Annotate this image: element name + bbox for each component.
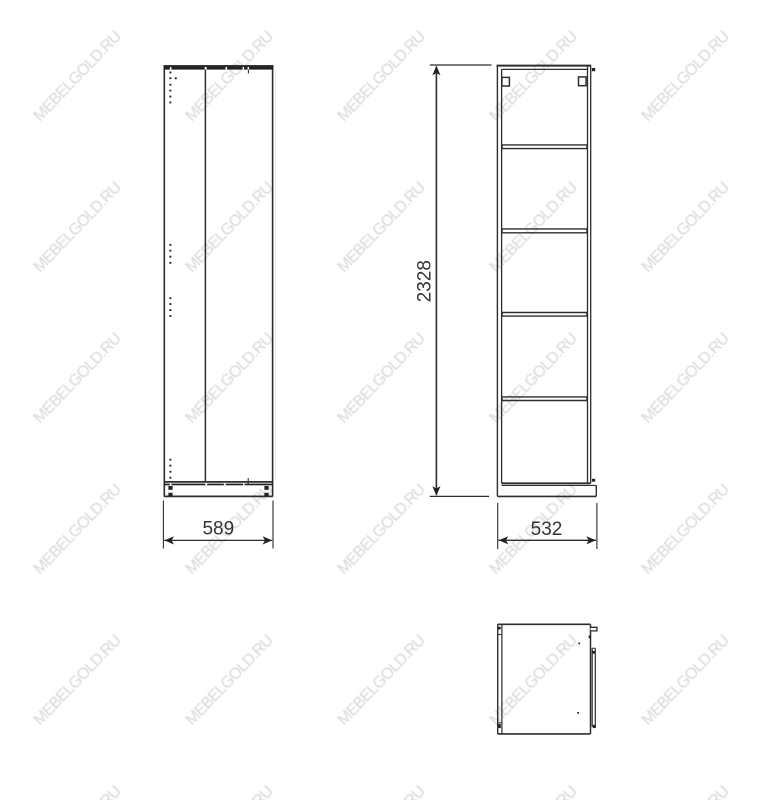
svg-text:589: 589 — [202, 519, 234, 540]
svg-text:532: 532 — [531, 519, 563, 540]
svg-text:2328: 2328 — [415, 260, 436, 302]
